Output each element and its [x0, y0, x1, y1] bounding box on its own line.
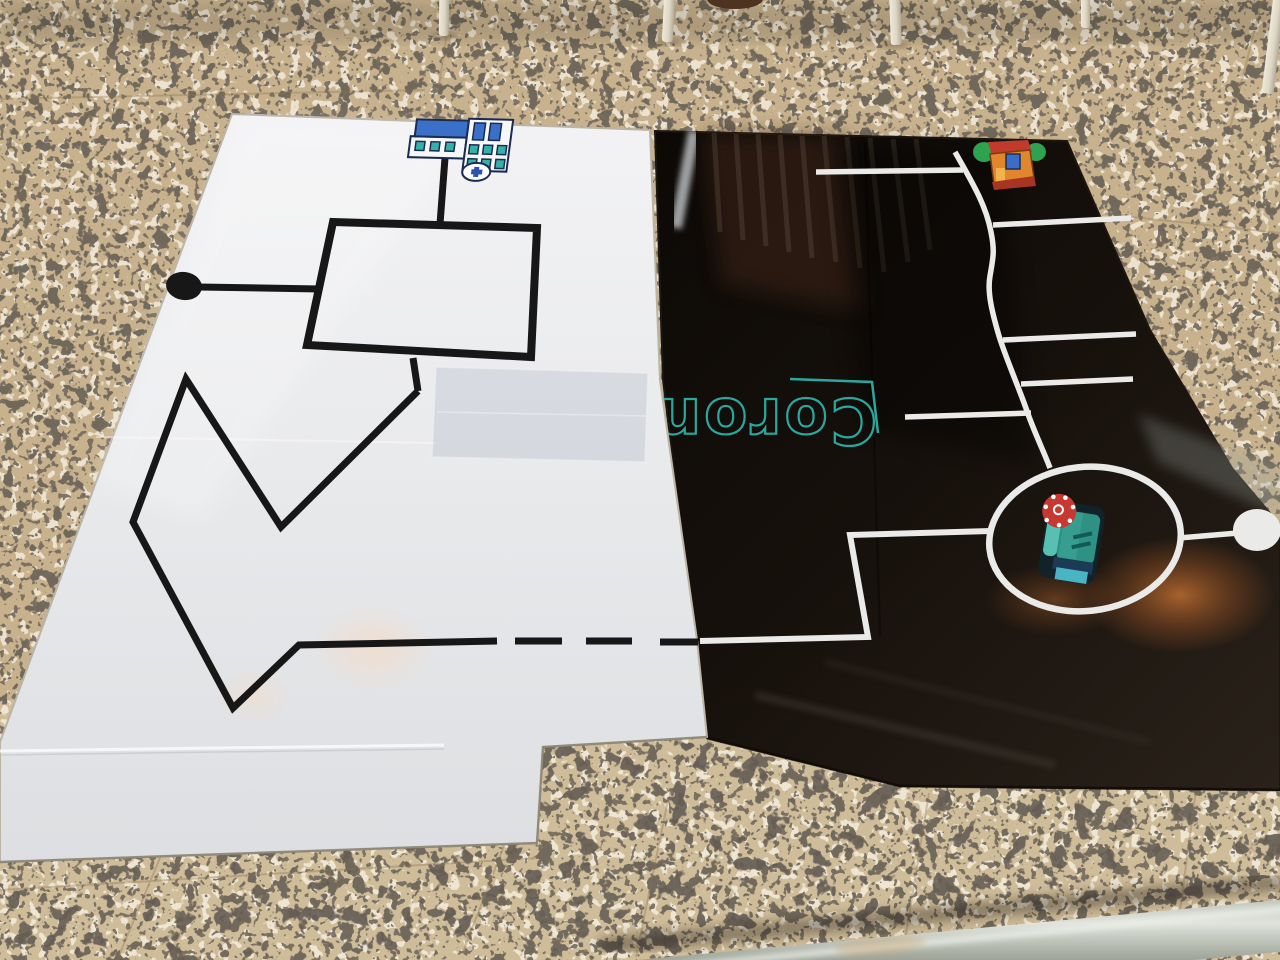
- end-dot: [1233, 509, 1280, 551]
- furniture-leg: [1081, 0, 1090, 28]
- hospital-windows: [415, 141, 455, 151]
- track-hospital-stem: [440, 158, 445, 224]
- dashed-line: [515, 641, 698, 642]
- tape-patch: [432, 367, 648, 462]
- furniture-leg: [439, 0, 450, 36]
- house-door: [996, 168, 1005, 182]
- scene-photo: Coron: [0, 0, 1280, 960]
- corona-logo-text: Coron: [653, 384, 877, 457]
- warm-highlight: [310, 606, 434, 690]
- corona-logo: Coron: [653, 379, 878, 457]
- furniture-leg: [889, 0, 902, 45]
- start-dot-connector: [198, 287, 320, 289]
- track-square-stem: [413, 358, 418, 391]
- road-branch-left-top: [816, 170, 963, 172]
- hospital-sign: [415, 119, 469, 137]
- house-window: [1006, 154, 1020, 169]
- scene-svg: Coron: [0, 0, 1280, 960]
